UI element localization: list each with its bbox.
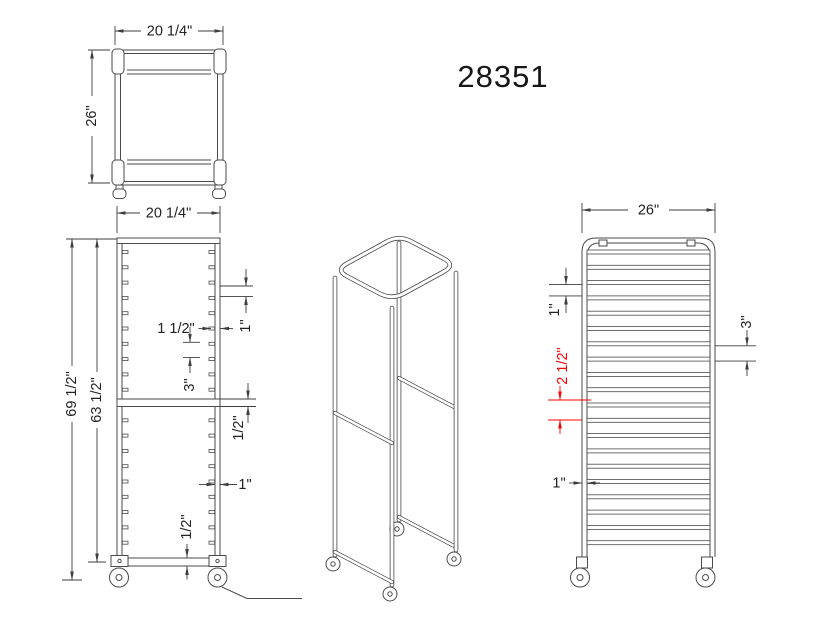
slide [587,342,710,346]
slide [587,296,710,300]
slide [122,434,128,437]
slide [122,419,128,422]
slide [122,511,128,514]
iso-left-post [326,278,340,571]
corner-post [214,160,226,185]
slide [122,358,128,361]
slide [209,266,215,269]
top-view-frame [112,49,226,185]
slide [209,541,215,544]
slide [122,312,128,315]
slide [122,342,128,345]
slide [587,388,710,392]
slide [587,449,710,453]
dim-label: 1/2" [179,514,195,539]
dim-label-highlighted: 2 1/2" [555,347,571,384]
slide [209,526,215,529]
slide [209,511,215,514]
slide [587,510,710,514]
slide [122,296,128,299]
dim-label: 26" [638,202,659,218]
slide [122,541,128,544]
dim-side-slide-gap: 1" [547,268,582,317]
slide [122,449,128,452]
dim-label: 20 1/4" [146,205,191,221]
slide [209,495,215,498]
slide [587,372,710,376]
dim-side-slide-pitch: 3" [715,315,756,376]
dim-top-width: 20 1/4" [115,23,223,45]
iso-front-post [383,308,397,601]
dim-front-mid-rail: 1/2" [220,383,256,441]
dim-label: 1 1/2" [157,321,194,337]
slide [209,358,215,361]
slide [587,541,710,545]
dim-front-post-width: 1" [199,477,252,493]
dim-label: 3" [739,315,755,328]
slide [209,251,215,254]
slide [122,388,128,391]
dim-label: 1" [238,477,251,493]
slide [587,495,710,499]
dim-front-width: 20 1/4" [117,205,220,233]
dim-label: 1/2" [231,415,247,440]
slide [209,296,215,299]
slide [587,250,710,254]
slide [209,465,215,468]
iso-front-rails [335,413,392,582]
slide [122,495,128,498]
drawing-canvas: 28351 [0,0,833,625]
slide [209,342,215,345]
slide [587,525,710,529]
slide [587,311,710,315]
dim-front-bottom-rail: 1/2" [179,514,195,579]
dim-label: 1" [552,475,565,491]
slide [587,464,710,468]
dim-top-depth: 26" [84,50,110,183]
slide [122,526,128,529]
dim-label: 63 1/2" [89,377,105,422]
slide [209,480,215,483]
top-view-casters [113,185,226,199]
iso-top-frame [341,238,450,296]
bottom-rail [115,558,223,566]
dim-side-width: 26" [582,202,715,233]
dim-front-slide-size: 1 1/2" [157,321,233,337]
slide [122,480,128,483]
slide [122,266,128,269]
slide [122,251,128,254]
mid-rail [117,399,220,407]
slide [209,419,215,422]
slide-ends [122,251,214,545]
dim-label: 69 1/2" [64,371,80,416]
dim-label: 3" [182,378,198,391]
corner-post [214,49,226,74]
iso-right-post [447,273,461,566]
slide [587,403,710,407]
top-view: 20 1/4" 26" [84,23,226,198]
slide [122,327,128,330]
technical-drawing: 20 1/4" 26" [0,0,833,625]
corner-post [112,160,124,185]
dim-label: 20 1/4" [147,23,192,39]
dim-label: 26" [84,105,100,126]
slide [209,281,215,284]
dim-label: 1" [238,319,254,332]
slide [587,281,710,285]
slide [209,388,215,391]
dim-front-slide-gap: 1" [220,269,254,333]
slide [209,312,215,315]
slide [587,480,710,484]
slide [587,357,710,361]
caster-leader-line [222,587,302,599]
corner-post [112,49,124,74]
slide [209,434,215,437]
iso-back-rails [399,378,456,547]
slide [122,465,128,468]
slide [587,434,710,438]
slide [587,265,710,269]
slide [209,373,215,376]
slide [122,281,128,284]
slide [209,449,215,452]
isometric-view [326,238,461,601]
front-view-frame [115,238,223,566]
side-view: 26" 1" 3" [547,202,756,587]
slide [122,373,128,376]
slide [587,418,710,422]
front-view: 20 1/4" 69 1/2" 63 1/2" 1 1 [62,205,302,598]
dim-front-frame-height: 63 1/2" [88,239,106,562]
side-view-casters [571,557,716,587]
side-view-frame [582,238,715,557]
dim-label: 1" [547,303,563,316]
slide [587,327,710,331]
